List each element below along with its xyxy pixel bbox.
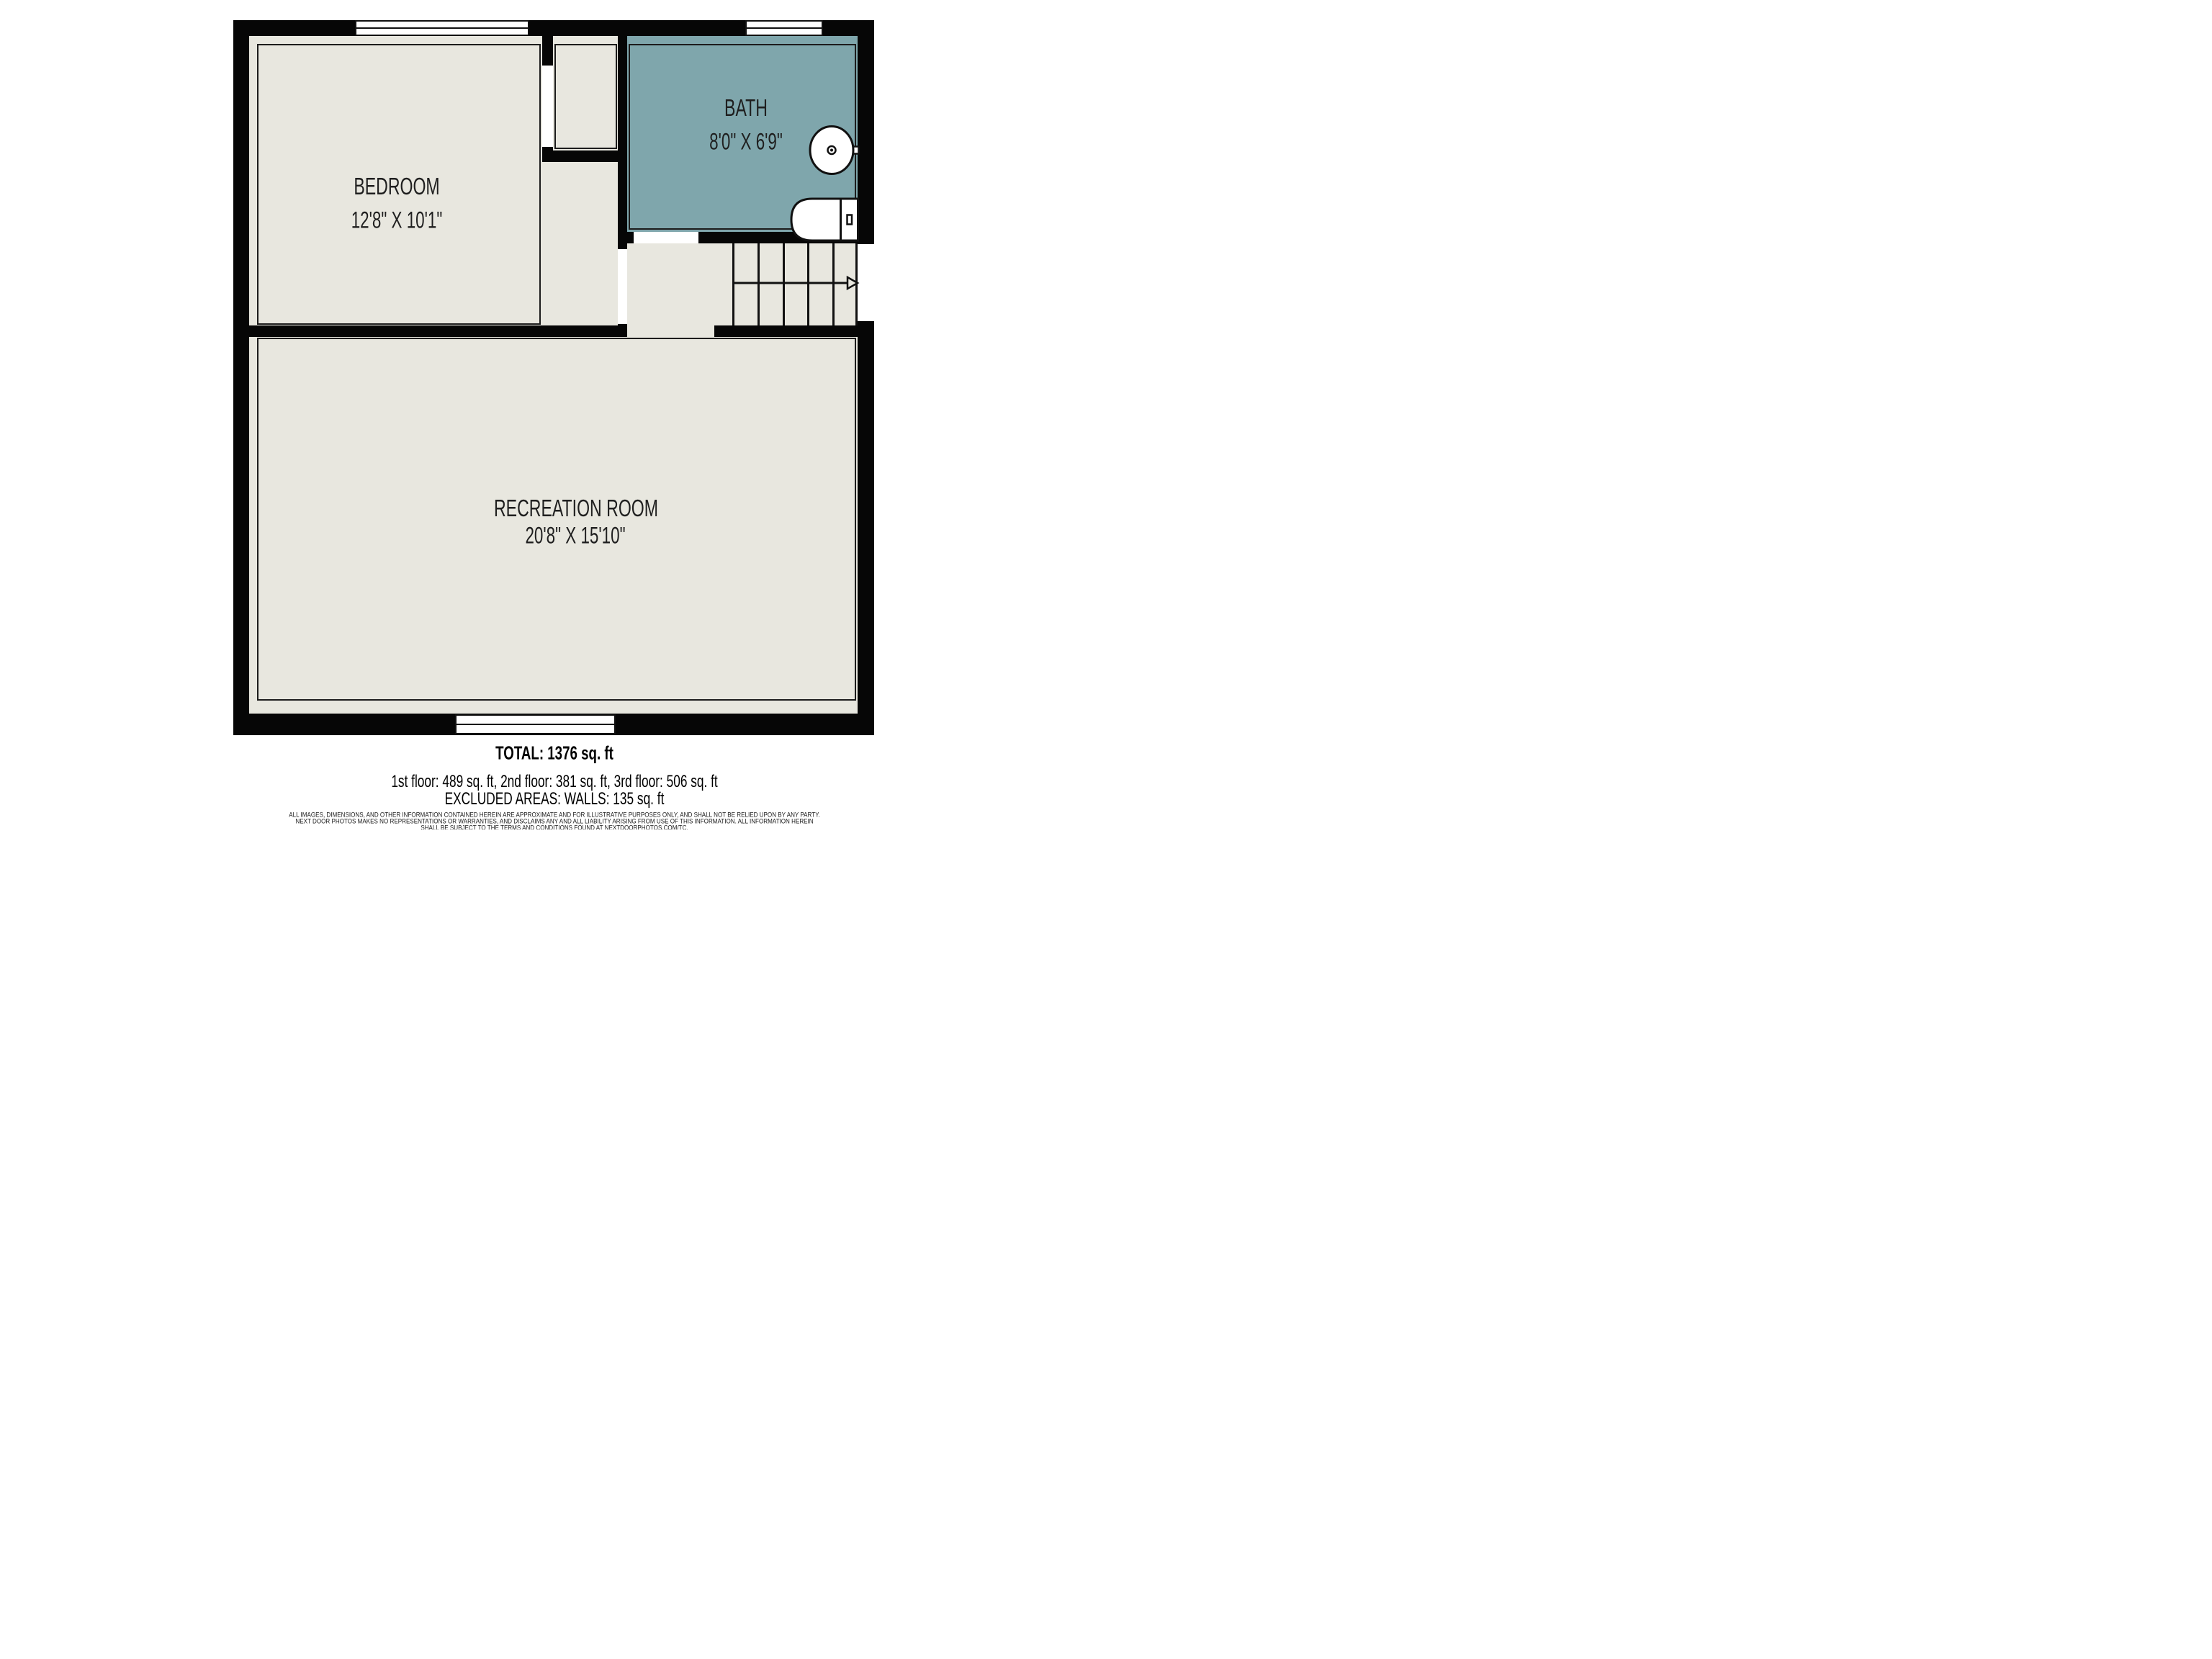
wall-stairs-bottom: [714, 325, 874, 337]
recreation-room-dimensions: 20'8" X 15'10": [504, 523, 647, 549]
bath-label-text: BATH: [724, 94, 768, 122]
window-symbol: [455, 714, 616, 734]
wall-left: [233, 20, 249, 735]
recreation-room-label: RECREATION ROOM: [459, 495, 693, 522]
sink-icon: [806, 125, 863, 176]
recreation-room-label-text: RECREATION ROOM: [494, 495, 658, 522]
door-opening-hall-landing: [618, 249, 627, 324]
bedroom-label-text: BEDROOM: [354, 173, 439, 200]
bedroom-dimensions-text: 12'8" X 10'1": [351, 207, 443, 234]
window-mullion: [456, 724, 615, 725]
wall-closet-bottom: [542, 150, 627, 162]
bedroom-label: BEDROOM: [336, 173, 459, 200]
disclaimer-text-3: SHALL BE SUBJECT TO THE TERMS AND CONDIT…: [421, 824, 688, 830]
total-area-value: TOTAL: 1376 sq. ft: [495, 742, 613, 765]
stairs-direction-arrow-icon: [730, 273, 860, 293]
total-area-text: TOTAL: 1376 sq. ft: [472, 742, 636, 765]
window-symbol: [745, 20, 823, 36]
window-symbol: [355, 20, 529, 36]
closet-outline: [554, 44, 617, 149]
floor-plan-page: BEDROOM 12'8" X 10'1" BATH 8'0" X 6'9" R…: [0, 0, 1106, 829]
bath-dimensions-text: 8'0" X 6'9": [709, 129, 783, 156]
bedroom-dimensions: 12'8" X 10'1": [332, 207, 462, 234]
door-opening-bedroom-closet: [542, 66, 553, 147]
excluded-areas-text: EXCLUDED AREAS: WALLS: 135 sq. ft: [402, 789, 706, 809]
bath-label: BATH: [715, 94, 777, 122]
bath-dimensions: 8'0" X 6'9": [693, 129, 798, 156]
wall-opening-stairs-right: [858, 244, 874, 321]
toilet-icon: [789, 197, 860, 243]
window-mullion: [746, 27, 822, 29]
floor-plan: BEDROOM 12'8" X 10'1" BATH 8'0" X 6'9" R…: [233, 20, 874, 735]
recreation-room-dimensions-text: 20'8" X 15'10": [525, 523, 625, 549]
wall-bedroom-bottom: [233, 325, 627, 337]
window-mullion: [356, 27, 529, 29]
door-opening-bath: [634, 232, 698, 243]
excluded-areas-value: EXCLUDED AREAS: WALLS: 135 sq. ft: [445, 789, 665, 809]
disclaimer-line-3: SHALL BE SUBJECT TO THE TERMS AND CONDIT…: [397, 824, 712, 830]
